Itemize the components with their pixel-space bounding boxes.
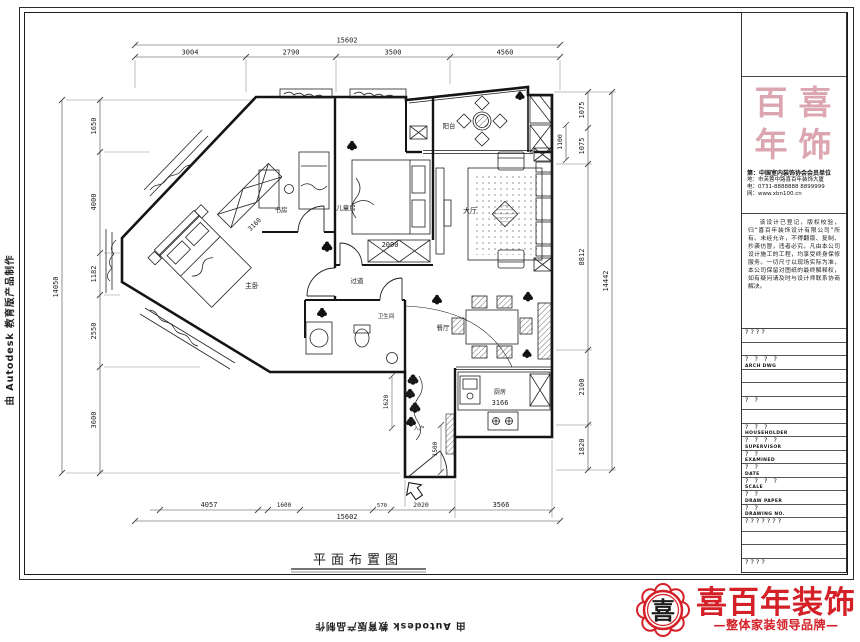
dim-right-3: 8812: [578, 249, 586, 266]
field-row-scale: ? ? ? ?SCALE: [742, 478, 846, 492]
dimension-lines: [59, 42, 616, 524]
field-row-supervisor: ? ? ? ?SUPERVISOR: [742, 437, 846, 451]
dim-right-total: 14442: [602, 270, 610, 291]
autodesk-watermark-left: 由 Autodesk 教育版产品制作: [2, 254, 16, 405]
dining-furniture: [452, 296, 551, 359]
field-row: [742, 383, 846, 397]
label-kids: 儿童房: [336, 203, 356, 212]
dim-entry-depth: 1500: [432, 441, 439, 456]
room-labels: 阳台 大厅 儿童房 书房 主卧 过道 卫生间 餐厅 厨房 入户: [245, 121, 506, 432]
field-row: [742, 370, 846, 384]
seal-char: 喜: [794, 83, 836, 123]
dim-bottom-3: 570: [377, 503, 387, 509]
autodesk-watermark-bottom: 由 Autodesk 教育版产品制作: [314, 620, 465, 634]
dim-balcony-depth: 1100: [556, 134, 564, 150]
seal-char: 百: [750, 83, 792, 123]
dim-left-total: 14050: [52, 276, 60, 297]
dim-right-4: 2100: [578, 379, 586, 396]
doors: [298, 206, 447, 477]
entry-decor: [401, 375, 454, 503]
label-study: 书房: [275, 205, 288, 214]
dim-right-2: 1075: [578, 138, 586, 155]
field-row-examined: ? ?EXAMINED: [742, 451, 846, 465]
titleblock-seal-box: 百 喜 年 饰 第：中国室内装饰协会会员单位 地：市芙蓉中路喜百年装饰大厦 电：…: [742, 77, 846, 214]
field-row: [742, 410, 846, 424]
living-room-furniture: [436, 148, 552, 271]
dim-bottom-5: 3566: [493, 501, 510, 509]
dim-kids-bed: 2000: [382, 241, 399, 249]
dim-bottom-total: 15602: [336, 513, 357, 521]
label-bathroom: 卫生间: [378, 312, 395, 320]
label-living: 大厅: [463, 206, 477, 215]
field-row-draw-paper: ? ?DRAW PAPER: [742, 491, 846, 505]
brand-logo: 喜 喜百年装饰 —整体家装领导品牌—: [634, 578, 860, 642]
field-row-drawing-no: ? ?DRAWING NO.: [742, 505, 846, 519]
seal-char: 年: [750, 125, 792, 165]
balcony-furniture: [410, 96, 551, 152]
dim-right-5: 1820: [578, 439, 586, 456]
field-row: [742, 545, 846, 559]
dim-top-total: 15602: [336, 37, 357, 45]
label-balcony: 阳台: [443, 121, 456, 130]
field-row: ???????: [742, 518, 846, 532]
field-row-householder: ? ? ?HOUSEHOLDER: [742, 424, 846, 438]
brand-name: 喜百年装饰: [696, 588, 856, 618]
dim-top-4: 4560: [497, 49, 514, 57]
titleblock-field-rows: ???? ? ? ? ?ARCH DWG ? ? ? ? ?HOUSEHOLDE…: [742, 329, 846, 572]
dim-top-2: 2790: [283, 49, 300, 57]
dim-bottom-2: 1600: [277, 502, 292, 509]
label-kitchen: 厨房: [494, 388, 506, 396]
dim-top-3: 3500: [385, 49, 402, 57]
dim-top-1: 3004: [182, 49, 199, 57]
field-row-date: ? ?DATE: [742, 464, 846, 478]
field-row: [742, 343, 846, 357]
brand-seal-icon: 喜: [634, 581, 692, 639]
company-seal-logo: 百 喜 年 饰: [750, 83, 838, 165]
contact-line: 电：0731-8888888 8899999: [747, 184, 841, 191]
dim-bottom-1: 4057: [201, 501, 218, 509]
bathroom-fixtures: [306, 322, 398, 364]
dim-left-2: 4000: [90, 194, 98, 211]
dim-right-1: 1075: [578, 102, 586, 119]
label-entry: 入户: [413, 424, 424, 432]
figure-title-group: 平面布置图: [291, 553, 426, 572]
dim-left-4: 2550: [90, 323, 98, 340]
field-row: [742, 532, 846, 546]
bay-windows: [106, 89, 406, 369]
field-row: ????: [742, 559, 846, 573]
dim-left-3: 1182: [90, 266, 98, 283]
dim-bottom-4: 2020: [413, 501, 429, 509]
dim-kitchen-counter: 3166: [492, 399, 509, 407]
dim-entry-width: 1620: [383, 394, 390, 409]
dim-left-5: 3600: [90, 412, 98, 429]
company-contact-info: 第：中国室内装饰协会会员单位 地：市芙蓉中路喜百年装饰大厦 电：0731-888…: [742, 170, 846, 198]
contact-line: 网：www.xbn100.cn: [747, 191, 841, 198]
copyright-statement-box: 该设计已登记，版权校验，归“喜百年装饰设计有限公司”所有。未经允许，不得翻版、复…: [742, 214, 846, 329]
field-row: ? ?: [742, 397, 846, 411]
field-row: ????: [742, 329, 846, 343]
label-corridor: 过道: [351, 276, 365, 285]
dim-left-1: 1650: [90, 118, 98, 135]
label-dining: 餐厅: [437, 323, 451, 332]
label-master: 主卧: [245, 281, 259, 290]
dim-master-width: 3160: [246, 216, 263, 233]
seal-char: 饰: [794, 125, 836, 165]
master-bedroom-furniture: [147, 163, 282, 314]
dimension-labels: 15602 3004 2790 3500 4560 4057 1600 570 …: [52, 37, 610, 522]
floor-plan-drawing: 阳台 大厅 儿童房 书房 主卧 过道 卫生间 餐厅 厨房 入户: [24, 12, 741, 573]
brand-seal-char: 喜: [651, 597, 675, 625]
contact-line: 第：中国室内装饰协会会员单位: [747, 170, 841, 177]
brand-tagline: —整体家装领导品牌—: [713, 618, 838, 633]
titleblock-blank-box: [742, 13, 846, 77]
contact-line: 地：市芙蓉中路喜百年装饰大厦: [747, 177, 841, 184]
figure-title: 平面布置图: [313, 553, 403, 568]
copyright-statement: 该设计已登记，版权校验，归“喜百年装饰设计有限公司”所有。未经允许，不得翻版、复…: [748, 219, 840, 291]
field-row: ? ? ? ?ARCH DWG: [742, 356, 846, 370]
title-block: 百 喜 年 饰 第：中国室内装饰协会会员单位 地：市芙蓉中路喜百年装饰大厦 电：…: [741, 12, 847, 573]
